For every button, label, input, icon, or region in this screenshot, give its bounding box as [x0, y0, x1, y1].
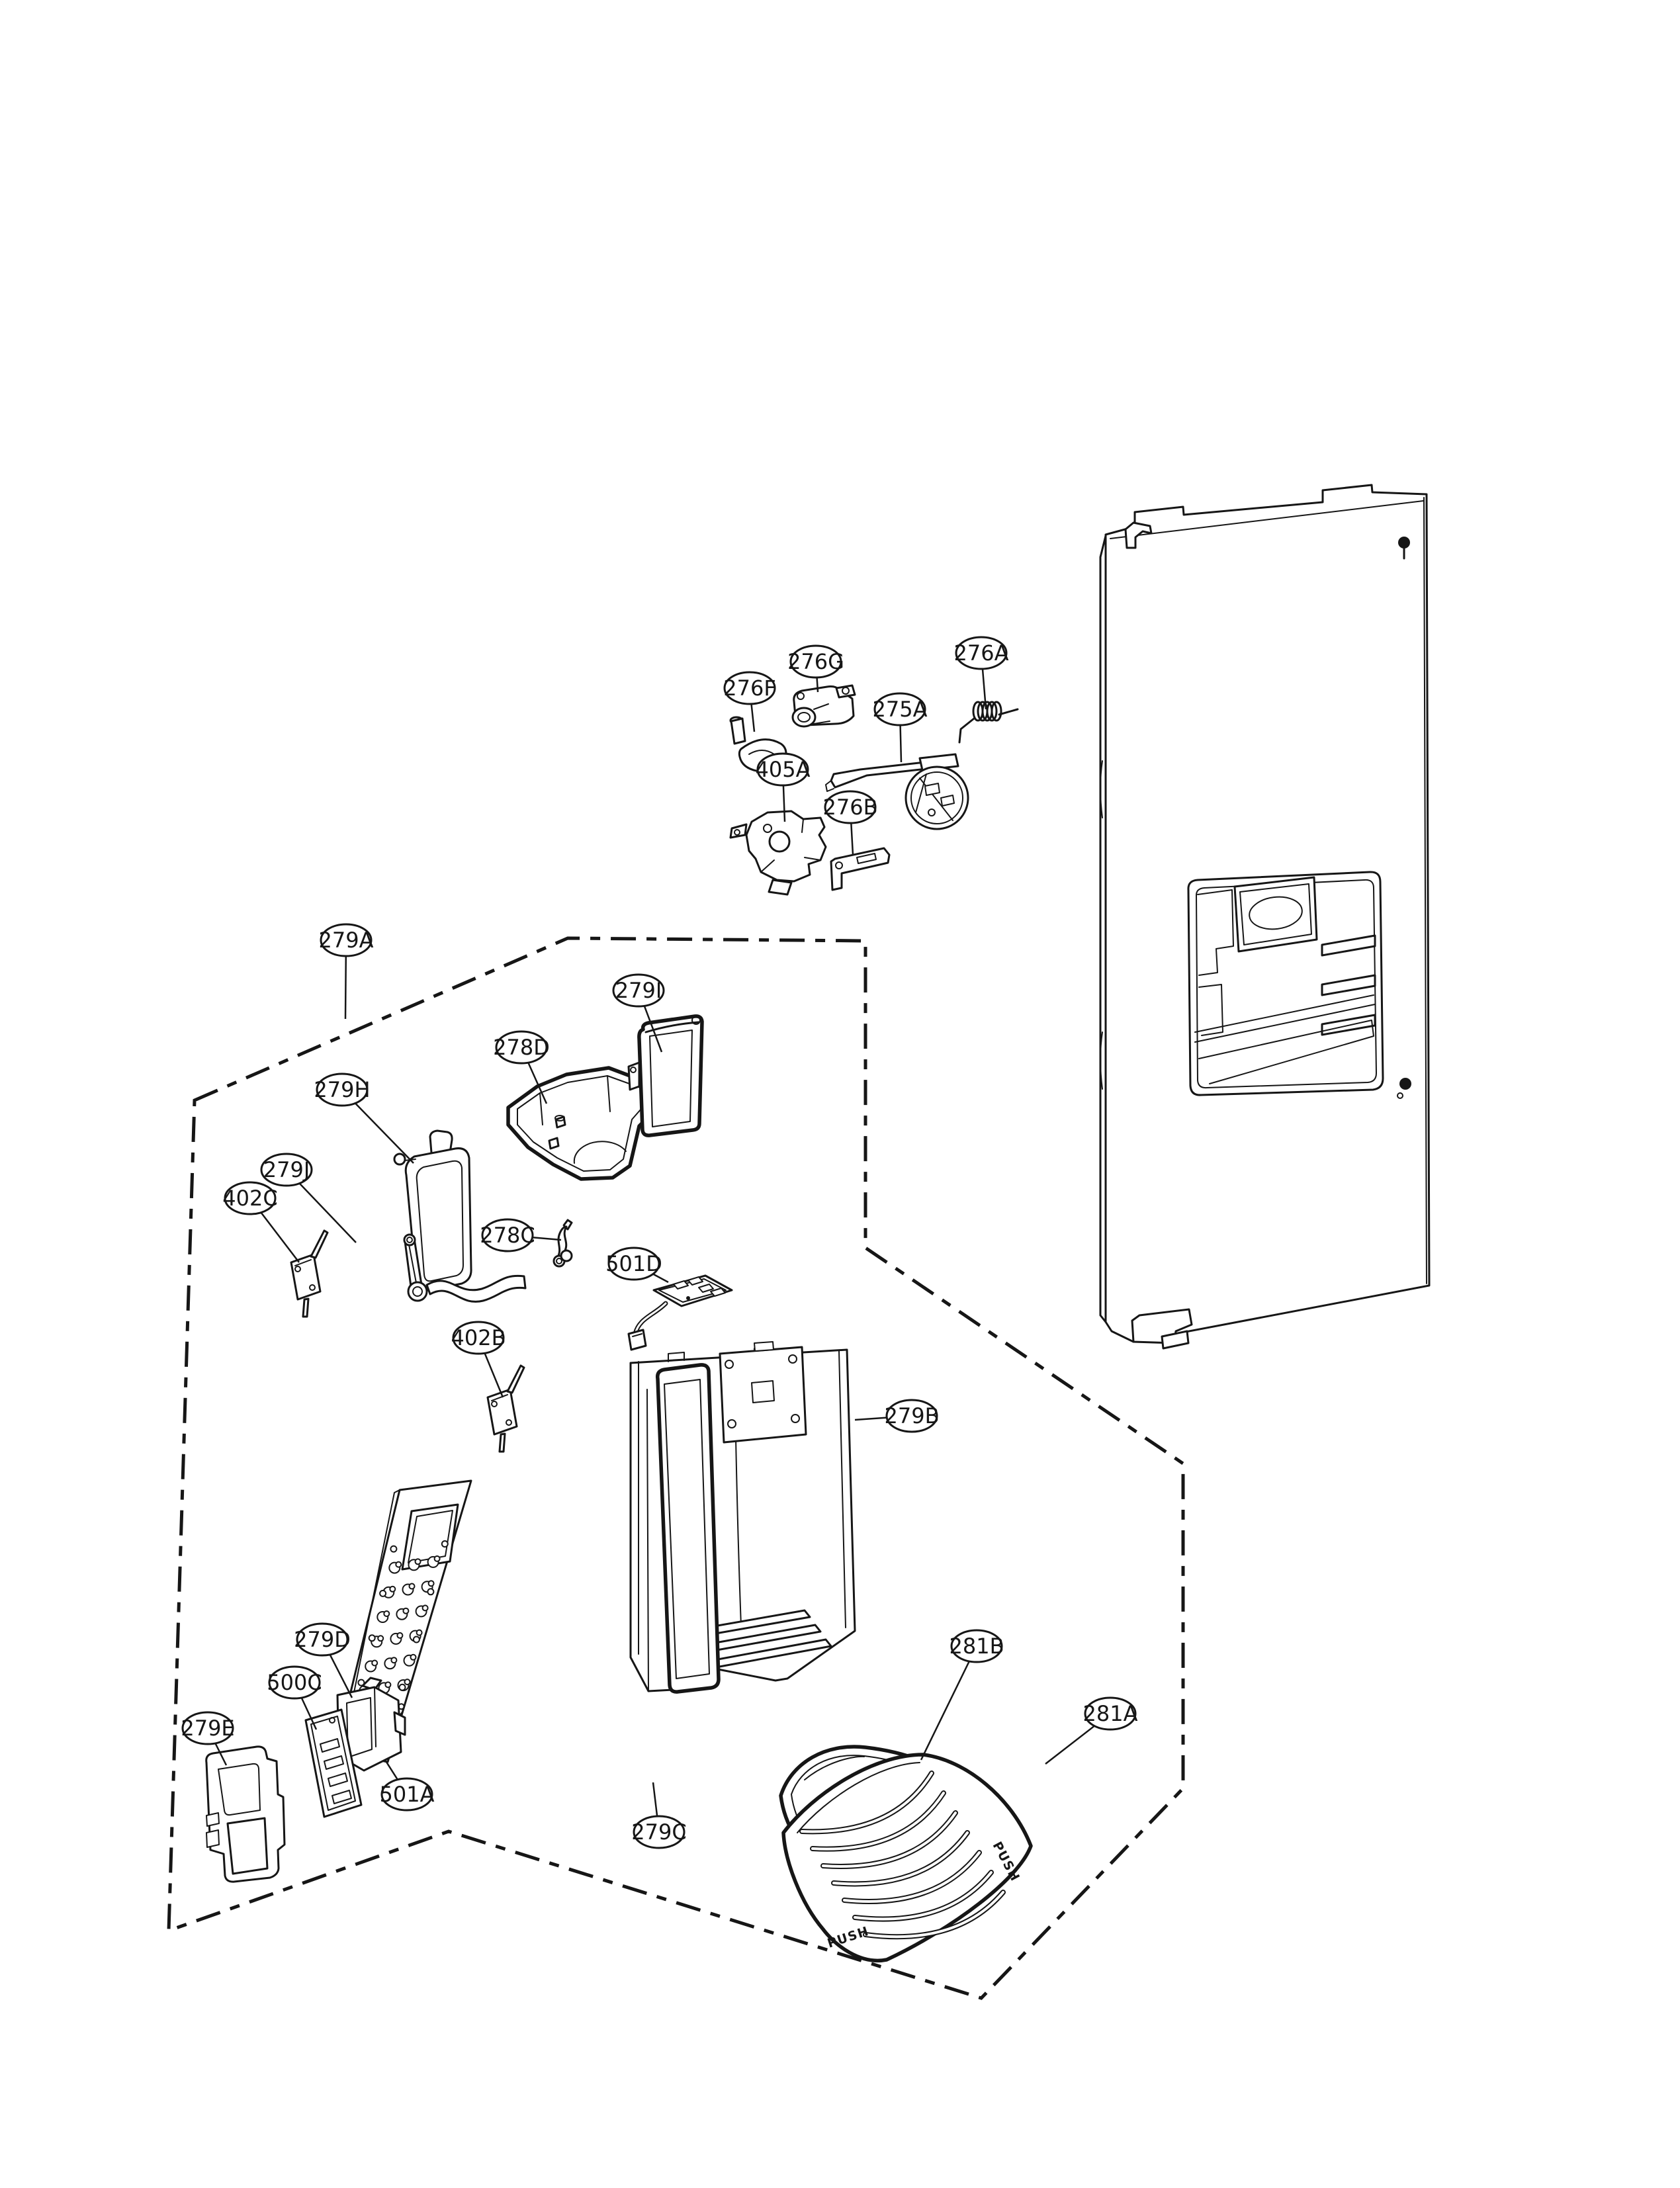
part-276A-spring — [959, 702, 1018, 742]
part-279C-front-cover — [658, 1365, 719, 1692]
callout-text-279D: 279D — [294, 1627, 351, 1652]
keypad-button — [390, 1546, 396, 1552]
keypad-button — [405, 1679, 410, 1685]
callout-text-279C: 279C — [631, 1819, 686, 1845]
callout-276B: 276B — [822, 791, 877, 855]
callout-text-276A: 276A — [954, 640, 1009, 666]
callout-text-281A: 281A — [1083, 1701, 1138, 1726]
part-276B-latch-bracket — [831, 848, 889, 890]
keypad-button — [391, 1657, 396, 1663]
callout-279B: 279B — [855, 1400, 940, 1432]
callout-278C: 278C — [480, 1219, 561, 1251]
keypad-button — [410, 1584, 415, 1589]
keypad-button — [435, 1556, 440, 1561]
callout-text-276G: 276G — [787, 649, 844, 674]
refrigerator-door — [1100, 485, 1429, 1348]
keypad-button — [411, 1655, 416, 1660]
callout-text-276F: 276F — [723, 676, 775, 701]
keypad-button — [442, 1541, 448, 1547]
callout-276A: 276A — [954, 637, 1009, 709]
callout-501A: 501A — [380, 1760, 435, 1810]
keypad-button — [403, 1608, 408, 1614]
keypad-button — [414, 1637, 420, 1643]
keypad-button — [427, 1589, 433, 1595]
callout-279H: 279H — [314, 1074, 414, 1163]
callout-text-405A: 405A — [756, 757, 811, 782]
callout-279A: 279A — [319, 924, 374, 1019]
wire-connector — [629, 1330, 646, 1350]
keypad-button — [385, 1682, 390, 1687]
callout-281B: 281B — [921, 1630, 1004, 1760]
callout-text-279H: 279H — [314, 1077, 370, 1102]
part-501D-sensor-pcb — [629, 1276, 732, 1350]
callout-text-279E: 279E — [181, 1716, 234, 1741]
door-side-gasket — [1100, 536, 1106, 1322]
callout-text-278D: 278D — [493, 1035, 550, 1060]
keypad-button — [390, 1587, 395, 1592]
callout-text-275A: 275A — [873, 697, 928, 722]
callout-text-279A: 279A — [319, 928, 374, 953]
callout-text-501A: 501A — [380, 1782, 435, 1807]
callout-text-278C: 278C — [480, 1223, 535, 1248]
keypad-button — [400, 1685, 406, 1690]
keypad-button — [416, 1559, 421, 1564]
part-405A-dispenser-motor-bracket — [730, 811, 826, 895]
callout-402C: 402C — [222, 1182, 299, 1262]
callout-text-281B: 281B — [949, 1634, 1004, 1659]
part-402B-micro-switch — [488, 1366, 524, 1452]
keypad-button — [369, 1635, 375, 1641]
door-screw-hole-top — [1398, 537, 1410, 548]
callout-text-402C: 402C — [222, 1186, 277, 1211]
exploded-parts-diagram: PUSH PUSH 276F276G405A276B275A276A279A27… — [0, 0, 1680, 2188]
keypad-button — [396, 1562, 401, 1567]
keypad-button — [429, 1581, 434, 1586]
keypad-button — [384, 1611, 389, 1616]
part-276G-solenoid-bracket — [793, 685, 855, 726]
keypad-button — [397, 1633, 402, 1638]
callout-text-402B: 402B — [451, 1325, 506, 1350]
callout-402B: 402B — [451, 1322, 506, 1397]
callout-text-501D: 501D — [605, 1251, 662, 1276]
callout-leader-281B — [921, 1646, 977, 1760]
callout-text-279B: 279B — [884, 1403, 939, 1428]
callout-text-279I: 279I — [615, 978, 662, 1003]
callout-text-500C: 500C — [267, 1670, 322, 1695]
callout-501D: 501D — [605, 1248, 668, 1282]
housing-mount-bracket — [720, 1342, 806, 1442]
keypad-button — [417, 1630, 422, 1636]
callout-281A: 281A — [1045, 1698, 1138, 1764]
part-402C-micro-switch — [291, 1231, 328, 1317]
door-screw-hole-bottom — [1399, 1078, 1411, 1090]
part-279E-support-bracket — [206, 1747, 285, 1882]
callout-276G: 276G — [787, 646, 844, 692]
keypad-button — [378, 1636, 383, 1641]
callout-278D: 278D — [493, 1031, 550, 1104]
part-278C-link-lever — [554, 1220, 572, 1266]
callout-text-276B: 276B — [822, 795, 877, 820]
callout-279C: 279C — [631, 1782, 686, 1848]
callout-275A: 275A — [873, 693, 928, 762]
keypad-button — [380, 1591, 386, 1597]
keypad-button — [372, 1661, 377, 1666]
parts-diagram-page: PUSH PUSH 276F276G405A276B275A276A279A27… — [0, 0, 1680, 2188]
keypad-button — [423, 1605, 428, 1610]
callout-text-279J: 279J — [263, 1157, 310, 1182]
